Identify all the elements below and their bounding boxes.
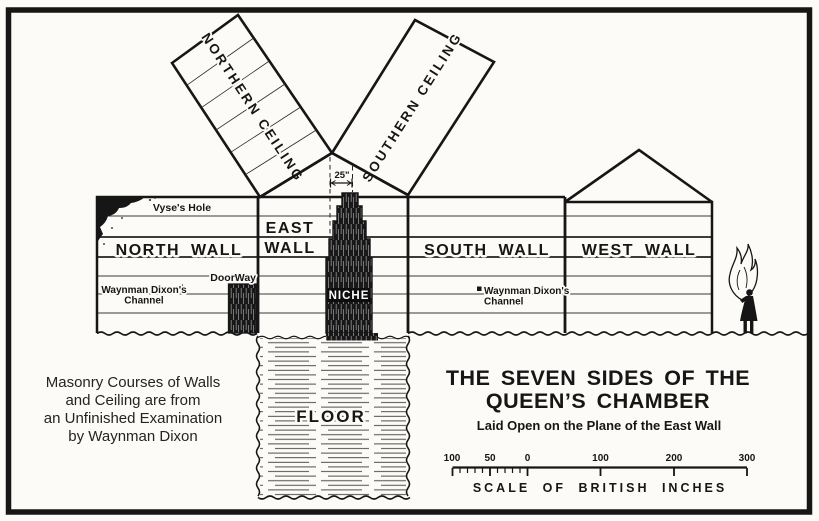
channel-south-line1: Waynman Dixon's — [484, 286, 570, 297]
title-line1: THE SEVEN SIDES OF THE — [446, 366, 750, 390]
scale-tick-0: 0 — [525, 453, 531, 464]
queens-chamber-diagram: NORTHERN CEILING SOUTHERN CEILING FLOOR … — [0, 0, 819, 521]
scale-caption: SCALE OF BRITISH INCHES — [473, 481, 727, 495]
scale-tick-300: 300 — [739, 453, 756, 464]
west-wall-label: WEST WALL — [582, 242, 696, 259]
niche-base-rubble — [326, 333, 378, 341]
note-line1: Masonry Courses of Walls — [46, 374, 221, 391]
floor-label: FLOOR — [296, 407, 366, 426]
scale-tick-50: 50 — [484, 453, 496, 464]
doorway-opening — [229, 284, 257, 333]
east-wall-label-line2: WALL — [264, 240, 315, 257]
masonry-note: Masonry Courses of Walls and Ceiling are… — [44, 374, 222, 445]
dimension-label: 25" — [334, 170, 349, 181]
figure-leg-right — [750, 321, 753, 334]
scale-tick-200: 200 — [666, 453, 683, 464]
title-line2: QUEEN’S CHAMBER — [486, 389, 710, 413]
title-subtitle: Laid Open on the Plane of the East Wall — [477, 418, 721, 433]
floor-pit: FLOOR — [257, 336, 411, 499]
east-wall-label-line1: EAST — [266, 220, 315, 237]
note-line2: and Ceiling are from — [65, 392, 200, 409]
title-block: THE SEVEN SIDES OF THE QUEEN’S CHAMBER L… — [446, 366, 750, 433]
scale-tick-100-left: 100 — [444, 453, 461, 464]
note-line4: by Waynman Dixon — [68, 428, 198, 445]
channel-marker-south — [477, 287, 482, 292]
scale-tick-100-right: 100 — [592, 453, 609, 464]
vyses-hole-label: Vyse's Hole — [153, 202, 211, 214]
channel-north-line1: Waynman Dixon's — [101, 285, 187, 296]
north-wall-label: NORTH WALL — [116, 242, 243, 259]
figure-leg-left — [744, 321, 747, 334]
doorway-label: DoorWay — [210, 272, 256, 284]
south-wall-label: SOUTH WALL — [424, 242, 550, 259]
note-line3: an Unfinished Examination — [44, 410, 222, 427]
niche-label: NICHE — [329, 290, 370, 302]
diagram-svg: NORTHERN CEILING SOUTHERN CEILING FLOOR … — [0, 0, 819, 521]
channel-south-line2: Channel — [484, 297, 524, 308]
figure-head — [746, 289, 753, 296]
channel-north-line2: Channel — [124, 296, 164, 307]
